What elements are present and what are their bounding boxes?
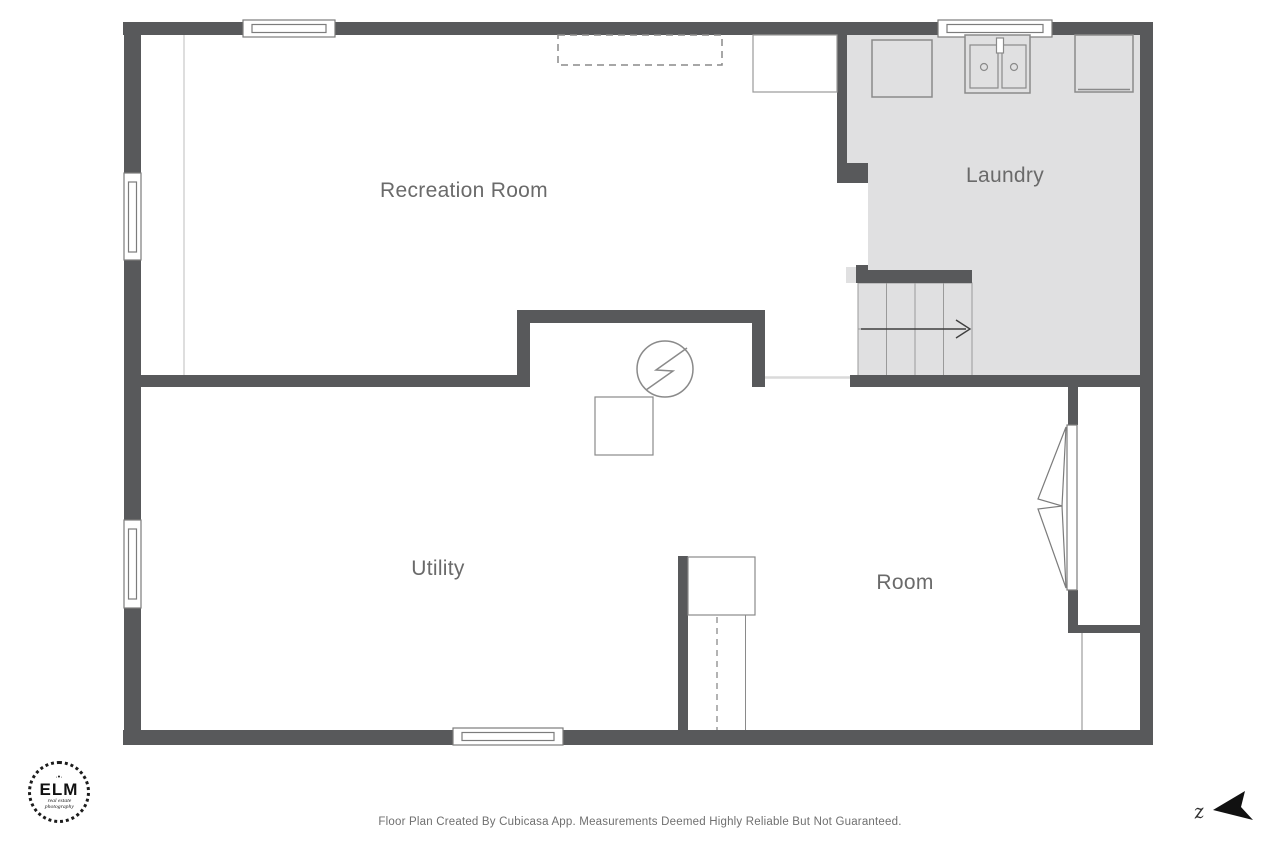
wall-laundry-divider [837,33,847,172]
wall-stairs-top [856,270,972,283]
square-fixture [595,397,653,455]
overhead-dashed-fixture [558,35,722,65]
window-bottom [453,728,563,745]
window-left-upper [124,173,141,260]
footer-disclaimer: Floor Plan Created By Cubicasa App. Meas… [0,816,1280,828]
wall-closet-stub-top [1068,387,1078,425]
bifold-door [1038,425,1077,590]
window-top-left [243,20,335,37]
wall-jut-right [752,310,765,387]
logo-subtitle-line1: real estate [47,798,71,804]
room-label-utility: Utility [411,557,464,581]
wall-room-divider [678,556,688,730]
room-label-room: Room [876,571,933,595]
wall-jut-top [517,310,765,323]
elm-logo-badge: ·•· ELM real estate photography [28,761,90,823]
wall-bottom [123,730,1153,745]
electrical-panel-symbol [637,341,693,397]
wall-laundry-bottom [850,375,1153,387]
compass-arrow-icon [1213,791,1253,820]
wall-laundry-hook [837,163,868,183]
washer-fixture [872,40,932,97]
dryer-fixture [1075,35,1133,92]
window-left-lower [124,520,141,608]
counter-fixture [753,35,837,92]
logo-title: ELM [40,781,79,798]
wall-closet-bottom [1068,625,1140,633]
laundry-sink [965,35,1030,93]
faucet-icon [997,38,1004,53]
compass-north-arrow: z [1185,778,1275,838]
floor-plan-page: Recreation Room Laundry Utility Room ·•·… [0,0,1280,853]
logo-subtitle-line2: photography [44,804,73,810]
compass-letter: z [1192,800,1207,823]
wall-recreation-bottom [124,375,530,387]
chimney-fixture [688,557,755,730]
floor-plan-drawing [0,0,1280,853]
room-label-recreation-room: Recreation Room [380,179,548,203]
room-label-laundry: Laundry [966,164,1044,188]
